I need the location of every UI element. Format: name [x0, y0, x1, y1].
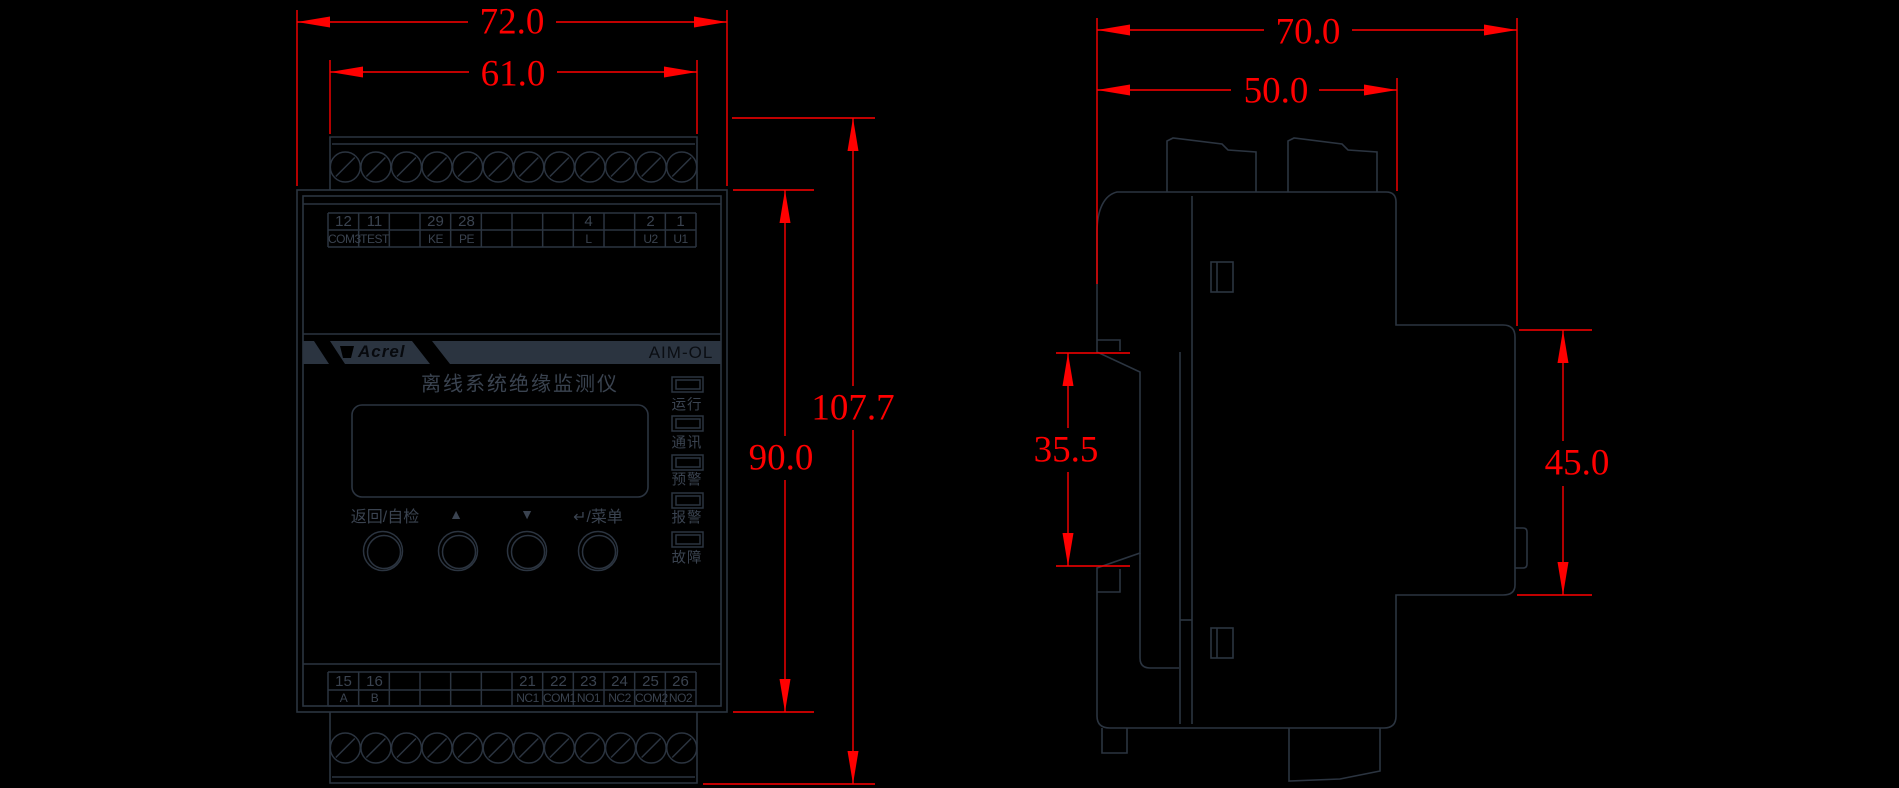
dim-front-height-outer: 107.7 — [811, 387, 894, 430]
led-label-fault: 故障 — [672, 547, 703, 568]
dim-side-width-inner: 50.0 — [1244, 70, 1309, 113]
terminal-label: NO2 — [665, 691, 696, 706]
terminal-label: U1 — [665, 232, 696, 247]
terminal-number: 28 — [451, 214, 482, 230]
push-button — [508, 532, 547, 571]
led-label-alarm: 报警 — [672, 507, 703, 528]
terminal-number: 22 — [543, 674, 574, 690]
terminal-number: 16 — [359, 674, 390, 690]
terminal-number: 24 — [604, 674, 635, 690]
side-top-terminal-block-1 — [1167, 138, 1256, 192]
terminal-label: NC2 — [604, 691, 635, 706]
side-view-lines — [1097, 138, 1527, 781]
dim-side-width-outer: 70.0 — [1276, 11, 1341, 54]
terminal-label: L — [573, 232, 604, 247]
terminal-label: U2 — [635, 232, 666, 247]
terminal-number: 11 — [359, 214, 390, 230]
dim-front-width-outer: 72.0 — [480, 1, 545, 44]
dim-side-rail-height: 35.5 — [1034, 429, 1099, 472]
terminal-label: TEST — [359, 232, 390, 247]
side-front-tab — [1515, 528, 1527, 568]
terminal-label: COM2 — [635, 691, 666, 706]
dim-front-height-inner: 90.0 — [749, 437, 814, 480]
terminal-number: 4 — [573, 214, 604, 230]
terminal-label: KE — [420, 232, 451, 247]
terminal-number: 25 — [635, 674, 666, 690]
led-label-prewarn: 预警 — [672, 469, 703, 490]
terminal-label: B — [359, 691, 390, 706]
terminal-label: NO1 — [573, 691, 604, 706]
push-button — [439, 532, 478, 571]
terminal-label: A — [328, 691, 359, 706]
front-body-outline — [297, 190, 727, 712]
led-label-comm: 通讯 — [672, 432, 703, 453]
side-bottom-foot — [1102, 728, 1127, 753]
terminal-number: 26 — [665, 674, 696, 690]
dimensional-drawing: 72.0 61.0 107.7 90.0 70.0 50.0 35.5 45.0… — [0, 0, 1899, 788]
button-label-down: ▼ — [520, 506, 534, 522]
terminal-number: 21 — [512, 674, 543, 690]
dimension-arrowheads — [297, 17, 1569, 785]
din-clip-pin-top — [1211, 262, 1233, 292]
product-title: 离线系统绝缘监测仪 — [421, 368, 619, 397]
din-clip-pin-bottom — [1211, 628, 1233, 658]
brand-logo-text: Acrel — [358, 342, 406, 362]
terminal-label: COM1 — [543, 691, 574, 706]
terminal-number: 1 — [665, 214, 696, 230]
terminal-number: 15 — [328, 674, 359, 690]
button-label-enter-menu: ↵/菜单 — [573, 503, 623, 527]
model-label: AIM-OL — [649, 343, 714, 363]
side-body-outline — [1097, 192, 1515, 728]
terminal-label: PE — [451, 232, 482, 247]
button-label-up: ▲ — [449, 506, 463, 522]
push-button — [364, 532, 403, 571]
dim-front-width-inner: 61.0 — [481, 53, 546, 96]
terminal-number: 12 — [328, 214, 359, 230]
terminal-number: 23 — [573, 674, 604, 690]
dimension-lines — [297, 10, 1592, 784]
drawing-canvas — [0, 0, 1899, 788]
side-top-terminal-block-2 — [1288, 138, 1377, 192]
terminal-label: COM3 — [328, 232, 359, 247]
terminal-number: 2 — [635, 214, 666, 230]
push-button — [579, 532, 618, 571]
dim-side-face-height: 45.0 — [1545, 442, 1610, 485]
terminal-label: NC1 — [512, 691, 543, 706]
button-label-back-selftest: 返回/自检 — [351, 503, 419, 527]
side-bottom-terminal-block — [1289, 728, 1380, 781]
led-label-run: 运行 — [672, 394, 703, 415]
terminal-number: 29 — [420, 214, 451, 230]
lcd-display — [352, 405, 648, 497]
